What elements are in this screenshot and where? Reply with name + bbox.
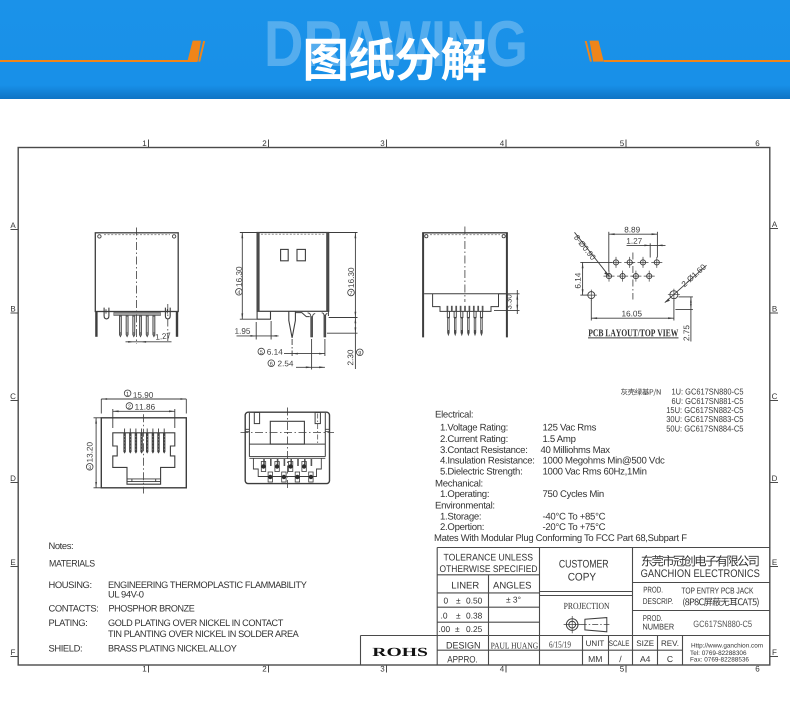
svg-text:6: 6 <box>755 665 760 674</box>
svg-text:1000 Megohms Min@500 Vdc: 1000 Megohms Min@500 Vdc <box>543 456 666 467</box>
svg-text:BRASS PLATING NICKEL ALLOY: BRASS PLATING NICKEL ALLOY <box>108 642 238 653</box>
svg-text:COPY: COPY <box>568 572 597 584</box>
svg-text:ROHS: ROHS <box>372 645 428 659</box>
svg-text:3: 3 <box>380 139 385 148</box>
svg-text:Environmental:: Environmental: <box>435 501 495 512</box>
svg-text:3.Contact Resistance:: 3.Contact Resistance: <box>440 445 528 456</box>
svg-text:TOP ENTRY PCB JACK: TOP ENTRY PCB JACK <box>681 586 753 596</box>
svg-text:±: ± <box>456 611 461 621</box>
svg-text:F: F <box>772 648 777 657</box>
svg-text:Electrical:: Electrical: <box>435 410 473 421</box>
svg-text:GANCHION ELECTRONICS: GANCHION ELECTRONICS <box>641 568 760 580</box>
svg-text:GOLD PLATING OVER NICKEL IN CO: GOLD PLATING OVER NICKEL IN CONTACT <box>108 617 284 628</box>
svg-text:125 Vac Rms: 125 Vac Rms <box>543 422 597 433</box>
svg-text:F: F <box>11 648 16 657</box>
svg-text:SCALE: SCALE <box>609 639 630 648</box>
svg-text:TOLERANCE UNLESS: TOLERANCE UNLESS <box>444 552 534 563</box>
svg-text:SIZE: SIZE <box>636 639 654 648</box>
svg-text:6/15/19: 6/15/19 <box>549 639 571 649</box>
svg-text:ANGLES: ANGLES <box>493 580 532 591</box>
svg-text:50U: GC617SN884-C5: 50U: GC617SN884-C5 <box>666 423 743 433</box>
svg-text:.00: .00 <box>439 624 451 634</box>
svg-text:GC617SN880-C5: GC617SN880-C5 <box>693 619 752 629</box>
svg-text:1: 1 <box>142 665 147 674</box>
svg-text:D: D <box>10 474 16 483</box>
svg-text:DRAWING: DRAWING <box>264 7 528 80</box>
svg-text:C: C <box>772 392 778 401</box>
svg-text:Mechanical:: Mechanical: <box>435 478 483 489</box>
svg-text:±: ± <box>455 624 460 634</box>
svg-text:2.Opertion:: 2.Opertion: <box>440 522 484 533</box>
svg-text:DESIGN: DESIGN <box>446 639 481 650</box>
svg-text:3: 3 <box>380 665 385 674</box>
svg-text:CONTACTS:: CONTACTS: <box>49 603 99 614</box>
svg-text:-20°C To +75°C: -20°C To +75°C <box>543 522 606 533</box>
svg-text:±: ± <box>456 596 461 606</box>
svg-text:A: A <box>772 220 778 229</box>
svg-text:MATERIALS: MATERIALS <box>49 558 95 569</box>
svg-text:4: 4 <box>500 139 505 148</box>
svg-text:40 Milliohms Max: 40 Milliohms Max <box>541 445 611 456</box>
svg-text:-40°C To +85°C: -40°C To +85°C <box>543 512 606 523</box>
svg-text:750 Cycles Min: 750 Cycles Min <box>543 489 604 500</box>
svg-text:/: / <box>619 654 622 664</box>
svg-text:1: 1 <box>142 139 147 148</box>
svg-text:5.Dielectric Strength:: 5.Dielectric Strength: <box>440 466 522 477</box>
svg-text:UNIT: UNIT <box>586 639 605 648</box>
svg-text:TIN PLANTING OVER NICKEL IN SO: TIN PLANTING OVER NICKEL IN SOLDER AREA <box>108 628 300 639</box>
svg-text:OTHERWISE SPECIFIED: OTHERWISE SPECIFIED <box>440 564 538 575</box>
svg-text:B: B <box>772 305 777 314</box>
svg-text:1000 Vac Rms 60Hz,1Min: 1000 Vac Rms 60Hz,1Min <box>543 466 647 477</box>
svg-text:PROJECTION: PROJECTION <box>564 602 610 612</box>
svg-text:PROD.: PROD. <box>643 585 663 595</box>
svg-text:± 3°: ± 3° <box>506 595 521 605</box>
svg-text:APPRO.: APPRO. <box>447 653 478 664</box>
svg-text:C: C <box>667 654 673 664</box>
svg-text:4.Insulation Resistance:: 4.Insulation Resistance: <box>440 456 535 467</box>
svg-text:LINER: LINER <box>451 580 479 591</box>
svg-text:D: D <box>772 474 778 483</box>
svg-text:REV.: REV. <box>661 639 679 648</box>
svg-text:C: C <box>10 392 16 401</box>
svg-text:PAUL HUANG: PAUL HUANG <box>491 640 539 650</box>
svg-text:1.5 Amp: 1.5 Amp <box>543 434 576 445</box>
svg-text:Fax: 0769-82288536: Fax: 0769-82288536 <box>690 657 749 664</box>
svg-text:SHIELD:: SHIELD: <box>49 642 83 653</box>
svg-text:5: 5 <box>620 139 625 148</box>
svg-text:.0: .0 <box>441 611 448 621</box>
svg-text:2: 2 <box>262 665 267 674</box>
svg-text:5: 5 <box>620 665 625 674</box>
svg-text:0.50: 0.50 <box>466 596 483 606</box>
svg-text:A: A <box>10 221 16 230</box>
svg-text:2: 2 <box>262 139 267 148</box>
svg-text:4: 4 <box>500 665 505 674</box>
svg-text:CUSTOMER: CUSTOMER <box>559 559 609 571</box>
svg-text:0: 0 <box>444 596 449 606</box>
svg-text:1.Storage:: 1.Storage: <box>440 512 481 523</box>
svg-text:2.Current Rating:: 2.Current Rating: <box>440 434 508 445</box>
svg-text:MM: MM <box>588 654 602 664</box>
svg-text:Notes:: Notes: <box>49 540 74 551</box>
svg-text:E: E <box>10 558 15 567</box>
svg-text:Http://www.ganchion.com: Http://www.ganchion.com <box>691 643 763 650</box>
svg-text:0.25: 0.25 <box>466 624 483 634</box>
svg-text:B: B <box>10 305 15 314</box>
svg-text:6: 6 <box>755 139 760 148</box>
svg-text:DESCRIP.: DESCRIP. <box>643 596 673 606</box>
svg-text:HOUSING:: HOUSING: <box>49 579 92 590</box>
svg-text:0.38: 0.38 <box>466 611 483 621</box>
svg-text:1.Voltage Rating:: 1.Voltage Rating: <box>440 422 508 433</box>
svg-text:NUMBER: NUMBER <box>643 622 675 632</box>
svg-text:PLATING:: PLATING: <box>49 617 88 628</box>
svg-text:Mates With Modular Plug Confor: Mates With Modular Plug Conforming To FC… <box>434 533 687 544</box>
svg-text:E: E <box>772 558 777 567</box>
svg-text:PHOSPHOR BRONZE: PHOSPHOR BRONZE <box>109 603 195 614</box>
svg-text:UL 94V-0: UL 94V-0 <box>108 588 144 599</box>
svg-text:A4: A4 <box>640 654 651 664</box>
svg-text:1.Operating:: 1.Operating: <box>440 489 489 500</box>
